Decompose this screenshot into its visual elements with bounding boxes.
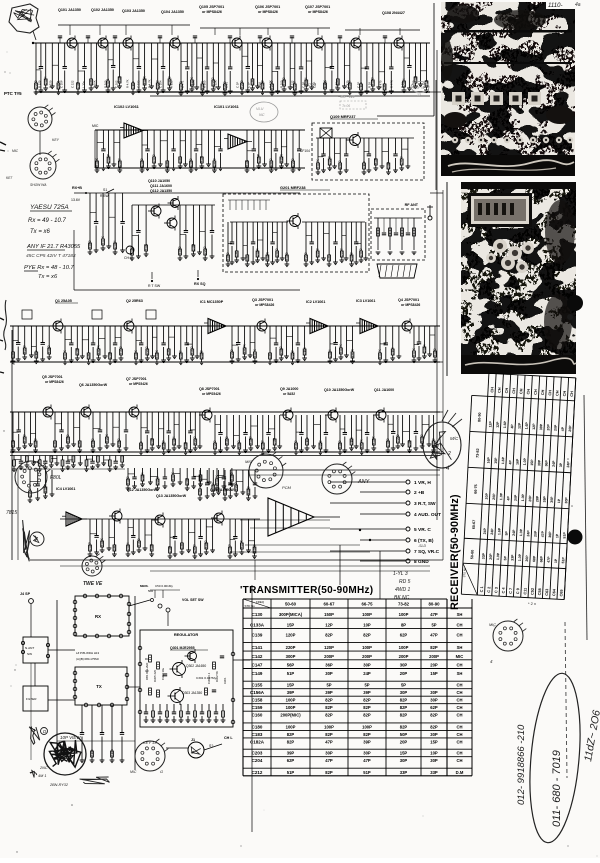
svg-text:R 100: R 100	[285, 252, 289, 261]
svg-text:CH: CH	[456, 751, 462, 756]
svg-text:or MPS5426: or MPS5426	[129, 382, 148, 386]
svg-text:RX+B: RX+B	[72, 186, 82, 190]
svg-text:C 222: C 222	[71, 80, 75, 88]
svg-text:MIC: MIC	[245, 459, 252, 464]
svg-text:30P: 30P	[430, 732, 438, 737]
svg-text:C65: C65	[559, 589, 563, 596]
svg-text:C 3P: C 3P	[236, 82, 240, 88]
svg-text:16P: 16P	[487, 456, 491, 463]
svg-text:30P: 30P	[430, 690, 438, 695]
svg-text:C.01: C.01	[235, 250, 239, 257]
svg-text:82P: 82P	[400, 713, 408, 718]
svg-text:Q107 JSP7001: Q107 JSP7001	[305, 5, 330, 9]
svg-text:MIC: MIC	[92, 124, 99, 128]
svg-text:33P: 33P	[481, 552, 485, 559]
svg-text:R 100: R 100	[34, 438, 38, 447]
svg-text:R 100: R 100	[126, 476, 130, 485]
svg-text:C63: C63	[545, 589, 549, 596]
svg-text:C 102: C 102	[179, 350, 183, 359]
svg-text:13.6V: 13.6V	[71, 198, 81, 202]
svg-text:45C CP5 42IV T 47183: 45C CP5 42IV T 47183	[26, 253, 76, 259]
svg-text:C142: C142	[252, 654, 263, 659]
svg-text:C 3P: C 3P	[185, 478, 189, 485]
svg-text:100P: 100P	[286, 698, 296, 703]
svg-text:C.01: C.01	[53, 440, 57, 447]
svg-text:R 100: R 100	[249, 436, 253, 445]
svg-text:120P: 120P	[286, 633, 296, 638]
svg-text:15P: 15P	[430, 739, 438, 744]
svg-text:Q112 JA1350: Q112 JA1350	[150, 189, 172, 193]
svg-text:Q301 MJE2955: Q301 MJE2955	[170, 646, 195, 650]
svg-text:C 10P: C 10P	[106, 154, 110, 163]
svg-text:MIC: MIC	[12, 149, 19, 153]
svg-text:R 560: R 560	[178, 246, 182, 255]
svg-text:82P: 82P	[363, 633, 371, 638]
svg-text:L# P35-WDH H13: L# P35-WDH H13	[76, 651, 100, 655]
svg-text:G: G	[160, 769, 163, 774]
svg-text:47P: 47P	[541, 530, 545, 537]
svg-text:R 1K: R 1K	[374, 157, 378, 165]
svg-text:KEY 13: KEY 13	[143, 740, 157, 745]
svg-text:39P: 39P	[363, 690, 371, 695]
svg-text:73-82: 73-82	[398, 602, 410, 607]
svg-text:RD 5: RD 5	[399, 579, 411, 585]
svg-text:4WD 1: 4WD 1	[395, 587, 411, 593]
svg-text:Q8 JSP7001: Q8 JSP7001	[199, 387, 220, 391]
svg-text:82P: 82P	[400, 698, 408, 703]
svg-text:Q110 JA1050: Q110 JA1050	[148, 179, 170, 183]
svg-text:30P: 30P	[550, 496, 554, 503]
svg-text:20P: 20P	[492, 493, 496, 500]
svg-text:51P: 51P	[562, 532, 566, 539]
svg-text:R 10K: R 10K	[155, 349, 159, 359]
svg-text:62P: 62P	[430, 705, 438, 710]
svg-text:20P: 20P	[489, 553, 493, 560]
svg-text:Q105 JSP7001: Q105 JSP7001	[199, 5, 224, 9]
svg-text:30P: 30P	[430, 758, 438, 763]
svg-text:300P(MICA): 300P(MICA)	[279, 612, 303, 617]
svg-text:20P: 20P	[546, 424, 550, 431]
svg-text:C58: C58	[538, 588, 542, 595]
svg-text:82P: 82P	[363, 705, 371, 710]
svg-text:Q13 JA1350GorW: Q13 JA1350GorW	[156, 494, 187, 498]
svg-text:RF ANT: RF ANT	[405, 203, 419, 207]
svg-text:C 3P: C 3P	[191, 244, 195, 251]
svg-text:15P: 15P	[400, 751, 408, 756]
svg-text:C149: C149	[252, 671, 263, 676]
svg-text:R 47K: R 47K	[390, 80, 394, 88]
svg-text:R 220: R 220	[23, 345, 27, 354]
svg-text:39P: 39P	[287, 690, 295, 695]
svg-text:1.6P: 1.6P	[497, 527, 501, 535]
svg-text:82P: 82P	[325, 713, 333, 718]
svg-text:R 560: R 560	[104, 80, 108, 88]
svg-text:R 10K: R 10K	[95, 157, 99, 167]
svg-text:R 47K: R 47K	[412, 347, 416, 357]
svg-text:C 222: C 222	[155, 476, 159, 485]
svg-text:PCM: PCM	[282, 485, 292, 490]
svg-text:Q3 JSP7001: Q3 JSP7001	[252, 298, 273, 302]
svg-text:C139: C139	[252, 633, 263, 638]
svg-text:20P: 20P	[430, 663, 438, 668]
svg-text:1.0P: 1.0P	[523, 457, 527, 465]
svg-text:R 4.7K: R 4.7K	[243, 343, 247, 354]
svg-text:120P: 120P	[324, 645, 334, 650]
svg-text:1.0P: 1.0P	[496, 552, 500, 560]
svg-text:15P: 15P	[530, 459, 534, 466]
svg-text:C64: C64	[552, 588, 556, 596]
svg-text:J1: J1	[191, 738, 195, 742]
svg-text:R 560: R 560	[226, 252, 230, 261]
svg-text:R 10K: R 10K	[110, 749, 114, 757]
svg-text:Tc.06: Tc.06	[342, 104, 350, 108]
svg-text:C 104: C 104	[113, 240, 117, 249]
svg-text:R 1K: R 1K	[144, 243, 148, 251]
svg-text:L 10u: L 10u	[34, 350, 38, 358]
svg-text:R 560: R 560	[91, 438, 95, 447]
svg-text:YAESU 725A: YAESU 725A	[30, 204, 69, 211]
svg-text:39P: 39P	[539, 423, 543, 430]
svg-text:R 1K: R 1K	[368, 82, 372, 88]
svg-text:1 VR, H: 1 VR, H	[414, 480, 431, 486]
svg-text:CH: CH	[456, 739, 462, 744]
svg-text:39P: 39P	[543, 495, 547, 502]
svg-text:R 330: R 330	[170, 80, 174, 88]
svg-text:20P: 20P	[554, 424, 558, 431]
svg-text:R 10K: R 10K	[93, 80, 97, 88]
svg-text:82P: 82P	[325, 770, 333, 775]
svg-text:R47 2.2: R47 2.2	[305, 83, 316, 87]
svg-text:15P: 15P	[287, 683, 295, 688]
svg-text:STD No: STD No	[245, 604, 256, 608]
svg-text:36P: 36P	[544, 459, 548, 466]
svg-text:82P: 82P	[430, 724, 438, 729]
svg-text:or MPS8426: or MPS8426	[308, 10, 328, 14]
svg-text:R 22K: R 22K	[105, 433, 109, 443]
svg-text:R 100: R 100	[324, 80, 328, 88]
svg-text:100P: 100P	[324, 724, 334, 729]
svg-text:VLU: VLU	[256, 107, 264, 111]
svg-text:300P: 300P	[286, 654, 296, 659]
svg-text:J4 SP: J4 SP	[20, 592, 31, 596]
svg-text:33P: 33P	[430, 770, 438, 775]
svg-text:80-90: 80-90	[477, 412, 481, 422]
svg-text:L 10u: L 10u	[139, 441, 143, 449]
svg-text:012- 9918866 -210: 012- 9918866 -210	[516, 724, 527, 805]
svg-text:82P: 82P	[287, 739, 295, 744]
svg-text:C 2: C 2	[487, 587, 491, 593]
svg-text:C 222: C 222	[291, 80, 295, 88]
svg-text:7 SQ, VR.C: 7 SQ, VR.C	[414, 549, 440, 555]
svg-text:C 470: C 470	[152, 154, 156, 163]
svg-text:5P: 5P	[431, 622, 436, 627]
svg-text:2BN-RY32: 2BN-RY32	[49, 783, 69, 787]
svg-text:39P: 39P	[287, 751, 295, 756]
svg-text:L 10u: L 10u	[131, 81, 135, 89]
svg-text:or MPS5426: or MPS5426	[202, 392, 221, 396]
svg-text:CF104: CF104	[300, 149, 310, 153]
svg-text:C 3P: C 3P	[247, 82, 251, 88]
svg-text:L 10u: L 10u	[82, 81, 86, 88]
svg-text:CH: CH	[570, 391, 574, 397]
svg-text:C 470: C 470	[212, 158, 216, 167]
svg-text:C50 0.001My: C50 0.001My	[155, 584, 173, 588]
svg-text:12P: 12P	[532, 423, 536, 430]
svg-text:R 220: R 220	[49, 80, 53, 88]
svg-text:'TRANSMITTER(50-90MHz): 'TRANSMITTER(50-90MHz)	[240, 585, 373, 596]
svg-text:C133A: C133A	[250, 622, 265, 627]
svg-text:20P: 20P	[525, 555, 529, 562]
svg-text:R 1K: R 1K	[184, 441, 188, 449]
svg-text:PTC T#5: PTC T#5	[4, 91, 22, 96]
svg-text:47P: 47P	[363, 758, 371, 763]
svg-text:100P: 100P	[286, 705, 296, 710]
svg-text:R305 220: R305 220	[153, 669, 157, 682]
svg-text:R 22K: R 22K	[192, 80, 196, 88]
svg-text:C 102: C 102	[200, 350, 204, 359]
svg-text:R302 5K: R302 5K	[215, 671, 219, 682]
svg-text:Q4 JSP7001: Q4 JSP7001	[398, 298, 419, 302]
svg-text:Q1 25A05: Q1 25A05	[55, 299, 72, 303]
svg-text:C.01: C.01	[178, 156, 182, 163]
svg-text:Tx = x6: Tx = x6	[30, 229, 51, 235]
svg-text:1.6P: 1.6P	[503, 420, 507, 428]
svg-text:C 104: C 104	[422, 344, 426, 353]
svg-text:Q9 JA1000: Q9 JA1000	[280, 387, 298, 391]
svg-text:C 222: C 222	[203, 246, 207, 255]
svg-text:C.01: C.01	[327, 254, 331, 261]
svg-text:CH: CH	[456, 663, 462, 668]
svg-text:R 10K: R 10K	[142, 75, 146, 85]
svg-text:30P: 30P	[400, 758, 408, 763]
svg-text:CH: CH	[456, 732, 462, 737]
svg-text:C 470: C 470	[275, 248, 279, 257]
svg-text:20P: 20P	[528, 495, 532, 502]
svg-text:C 3P: C 3P	[273, 438, 277, 445]
svg-text:R 220: R 220	[234, 482, 238, 491]
svg-text:82P: 82P	[363, 732, 371, 737]
svg-text:60-67: 60-67	[324, 602, 336, 607]
svg-text:36P: 36P	[325, 663, 333, 668]
svg-text:IC1 MC1350P: IC1 MC1350P	[200, 300, 224, 304]
svg-text:Q109 MRF237: Q109 MRF237	[330, 114, 356, 119]
svg-text:28P: 28P	[535, 495, 539, 502]
svg-text:47P: 47P	[325, 758, 333, 763]
svg-text:60-67: 60-67	[472, 520, 476, 530]
svg-text:M/C: M/C	[450, 436, 459, 441]
svg-text:12P: 12P	[496, 421, 500, 428]
svg-text:R 330: R 330	[119, 346, 123, 355]
svg-text:82P: 82P	[325, 698, 333, 703]
svg-text:1.0P: 1.0P	[521, 493, 525, 501]
svg-text:C 3P: C 3P	[150, 438, 154, 445]
svg-text:C 10P: C 10P	[88, 542, 92, 551]
svg-text:C158: C158	[252, 698, 263, 703]
svg-text:C 470: C 470	[359, 248, 363, 257]
svg-text:BK NC: BK NC	[394, 595, 410, 601]
svg-text:150P: 150P	[324, 612, 334, 617]
svg-text:20P: 20P	[533, 530, 537, 537]
svg-text:36P: 36P	[548, 531, 552, 538]
svg-text:R 100: R 100	[433, 348, 437, 357]
svg-text:C 3P: C 3P	[108, 352, 112, 359]
svg-text:50P: 50P	[400, 732, 408, 737]
svg-text:R 4.7K: R 4.7K	[316, 158, 320, 169]
svg-text:R 560: R 560	[117, 438, 121, 447]
svg-text:1.0P: 1.0P	[499, 492, 503, 500]
svg-text:4a: 4a	[575, 2, 581, 8]
svg-text:73-82: 73-82	[475, 448, 479, 458]
svg-text:7815: 7815	[6, 510, 17, 516]
svg-text:R 220: R 220	[193, 436, 197, 445]
svg-text:or MPS8426: or MPS8426	[202, 10, 222, 14]
svg-text:C 3P: C 3P	[75, 348, 79, 355]
svg-text:33P: 33P	[510, 554, 514, 561]
svg-text:CH: CH	[534, 389, 538, 395]
svg-text:62P: 62P	[287, 758, 295, 763]
svg-text:Q5 JSP7001: Q5 JSP7001	[42, 375, 63, 379]
svg-text:R 4.7K: R 4.7K	[360, 438, 364, 449]
svg-text:C3: C3	[145, 669, 149, 673]
svg-text:C 3: C 3	[494, 587, 498, 593]
svg-text:3 R.T, SW: 3 R.T, SW	[414, 501, 436, 507]
svg-text:30P: 30P	[430, 698, 438, 703]
svg-text:KEY: KEY	[52, 138, 60, 142]
svg-text:C.01: C.01	[225, 82, 229, 88]
svg-text:5P: 5P	[326, 683, 331, 688]
svg-text:30P: 30P	[564, 497, 568, 504]
svg-text:CH: CH	[490, 387, 494, 393]
svg-text:2 +B: 2 +B	[414, 490, 425, 496]
svg-text:C 3P: C 3P	[168, 546, 172, 553]
svg-text:C 470: C 470	[193, 544, 197, 553]
svg-text:CH: CH	[456, 698, 462, 703]
svg-text:C 9: C 9	[516, 588, 520, 594]
svg-text:R 10K: R 10K	[100, 537, 104, 547]
svg-text:CH: CH	[456, 724, 462, 729]
svg-text:C141: C141	[252, 645, 263, 650]
svg-text:R 1K: R 1K	[335, 82, 339, 88]
svg-text:011- 680 - 7019: 011- 680 - 7019	[551, 750, 563, 827]
svg-text:R 100: R 100	[280, 80, 284, 88]
svg-text:R 1K: R 1K	[245, 159, 249, 167]
svg-text:R 47K: R 47K	[101, 235, 105, 245]
svg-text:R 4.7K: R 4.7K	[126, 79, 130, 88]
svg-text:1.6P: 1.6P	[525, 421, 529, 429]
svg-text:SH: SH	[457, 612, 463, 617]
svg-text:CH: CH	[456, 633, 462, 638]
svg-text:30P: 30P	[363, 751, 371, 756]
svg-text:R 47K: R 47K	[253, 348, 257, 358]
svg-text:C 222: C 222	[396, 434, 400, 443]
svg-text:10P: 10P	[363, 622, 371, 627]
svg-text:C 102: C 102	[386, 438, 390, 447]
svg-text:51P: 51P	[287, 671, 295, 676]
svg-text:or MPS8426: or MPS8426	[255, 303, 274, 307]
svg-text:C147: C147	[252, 663, 263, 668]
svg-text:C.01: C.01	[11, 351, 15, 358]
svg-text:R 10K: R 10K	[134, 349, 138, 359]
svg-text:C 1: C 1	[480, 586, 484, 592]
svg-text:82P: 82P	[430, 645, 438, 650]
svg-text:CH: CH	[456, 683, 462, 688]
svg-text:50R: 50R	[148, 589, 153, 593]
svg-text:C 102: C 102	[115, 80, 119, 88]
svg-text:FREQ: FREQ	[256, 600, 265, 604]
svg-text:Q102 JA1350: Q102 JA1350	[91, 8, 114, 12]
svg-text:Q11 JA1600: Q11 JA1600	[374, 388, 394, 392]
svg-text:C.01: C.01	[250, 78, 254, 85]
svg-text:82P: 82P	[363, 713, 371, 718]
svg-text:or MPS8426: or MPS8426	[258, 10, 278, 14]
svg-text:68P: 68P	[539, 555, 543, 562]
svg-text:R 22K: R 22K	[279, 153, 283, 163]
svg-text:or MPS8426: or MPS8426	[45, 380, 64, 384]
svg-text:R 560: R 560	[203, 80, 207, 88]
svg-text:CH: CH	[541, 389, 545, 395]
svg-text:5P: 5P	[364, 683, 369, 688]
svg-text:CH: CH	[497, 387, 501, 393]
svg-text:100P: 100P	[362, 612, 372, 617]
svg-text:24P: 24P	[363, 671, 371, 676]
svg-text:IC101 LV1061: IC101 LV1061	[214, 104, 240, 109]
svg-text:C183: C183	[252, 732, 263, 737]
svg-text:15P: 15P	[430, 671, 438, 676]
svg-text:RX SQ: RX SQ	[194, 282, 206, 286]
svg-text:200P: 200P	[362, 654, 372, 659]
svg-text:IC102 LV1061: IC102 LV1061	[114, 104, 140, 109]
svg-text:ANY IF 21.7 R43055: ANY IF 21.7 R43055	[26, 244, 81, 250]
svg-text:or MPS8426: or MPS8426	[401, 303, 420, 307]
svg-text:1.0P: 1.0P	[518, 553, 522, 561]
svg-text:100P: 100P	[362, 645, 372, 650]
svg-text:NC: NC	[259, 113, 265, 117]
svg-text:82P: 82P	[325, 732, 333, 737]
svg-text:IC3 LV1061: IC3 LV1061	[356, 299, 375, 303]
svg-text:24P: 24P	[526, 530, 530, 537]
svg-text:1.0P: 1.0P	[519, 528, 523, 536]
svg-text:47P: 47P	[325, 739, 333, 744]
svg-text:CH L: CH L	[124, 256, 132, 260]
svg-text:C182A: C182A	[250, 739, 265, 744]
svg-text:R 1K: R 1K	[200, 155, 204, 163]
svg-text:R 1K: R 1K	[258, 82, 262, 88]
svg-text:82P: 82P	[325, 633, 333, 638]
svg-text:C 10P: C 10P	[228, 544, 232, 553]
svg-text:G201 MRF238: G201 MRF238	[280, 185, 306, 190]
svg-text:47P: 47P	[430, 612, 438, 617]
svg-text:R 10K: R 10K	[372, 435, 376, 445]
svg-text:47P: 47P	[547, 556, 551, 563]
svg-text:RX: RX	[95, 614, 101, 619]
svg-text:82P: 82P	[325, 705, 333, 710]
svg-text:30P: 30P	[400, 690, 408, 695]
svg-text:Q101 JA1350: Q101 JA1350	[58, 8, 81, 12]
svg-text:C 222: C 222	[145, 346, 149, 355]
svg-text:N.ANT: N.ANT	[25, 646, 34, 650]
svg-text:SH: SH	[457, 671, 463, 676]
svg-text:50-60: 50-60	[285, 602, 297, 607]
svg-text:C.01: C.01	[87, 352, 91, 359]
svg-text:X301: X301	[223, 677, 227, 684]
svg-text:200P(MIC): 200P(MIC)	[280, 713, 301, 718]
svg-text:Q7 JSP7001: Q7 JSP7001	[126, 377, 147, 381]
svg-text:C 102: C 102	[350, 252, 354, 261]
svg-text:R 22K: R 22K	[214, 80, 218, 88]
svg-text:20P: 20P	[568, 425, 572, 432]
svg-text:CH: CH	[563, 390, 567, 396]
svg-text:R 4.7K: R 4.7K	[378, 348, 382, 359]
